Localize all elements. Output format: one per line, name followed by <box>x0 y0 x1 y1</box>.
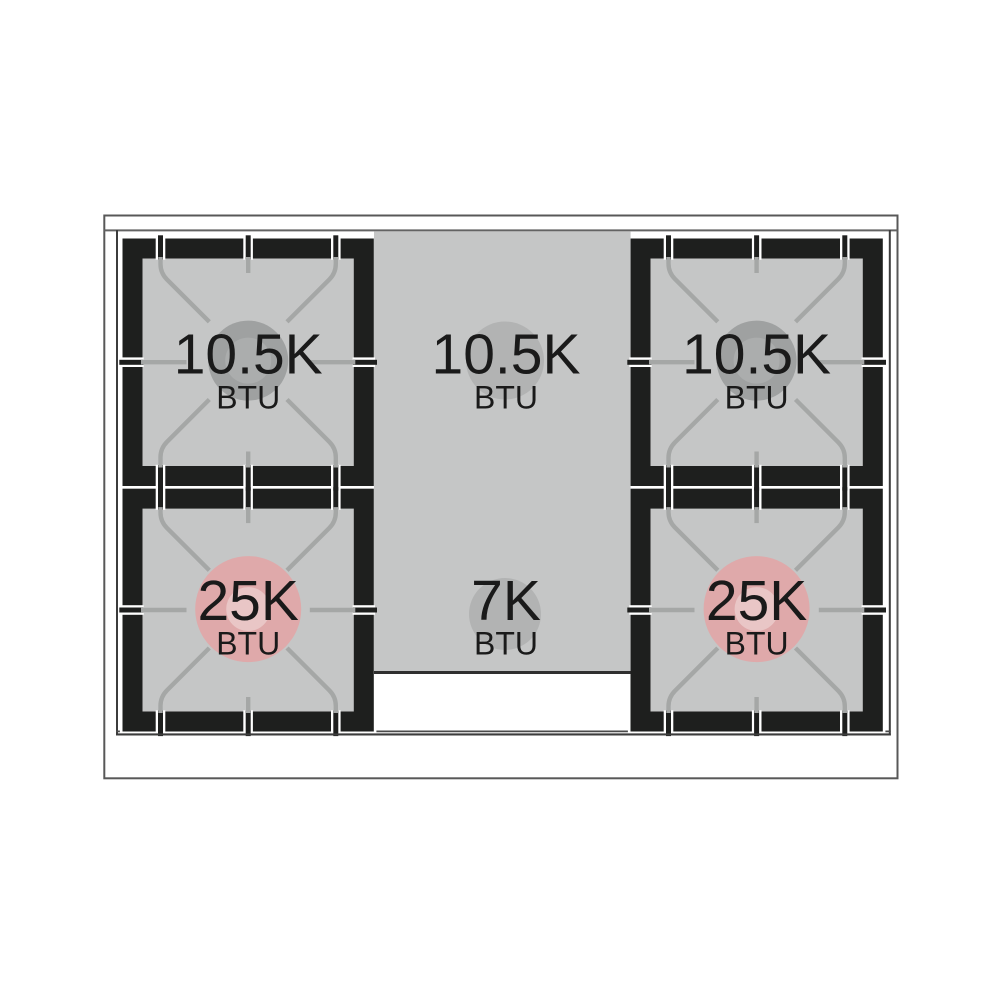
svg-text:10.5K: 10.5K <box>432 323 581 387</box>
svg-text:25K: 25K <box>706 569 807 633</box>
svg-text:7K: 7K <box>471 569 541 633</box>
svg-text:10.5K: 10.5K <box>682 323 831 387</box>
svg-text:BTU: BTU <box>474 379 538 415</box>
svg-text:BTU: BTU <box>725 626 789 662</box>
svg-text:BTU: BTU <box>725 379 789 415</box>
svg-text:BTU: BTU <box>474 626 538 662</box>
svg-text:BTU: BTU <box>216 379 280 415</box>
svg-text:25K: 25K <box>197 569 298 633</box>
svg-text:BTU: BTU <box>216 626 280 662</box>
svg-text:10.5K: 10.5K <box>174 323 323 387</box>
